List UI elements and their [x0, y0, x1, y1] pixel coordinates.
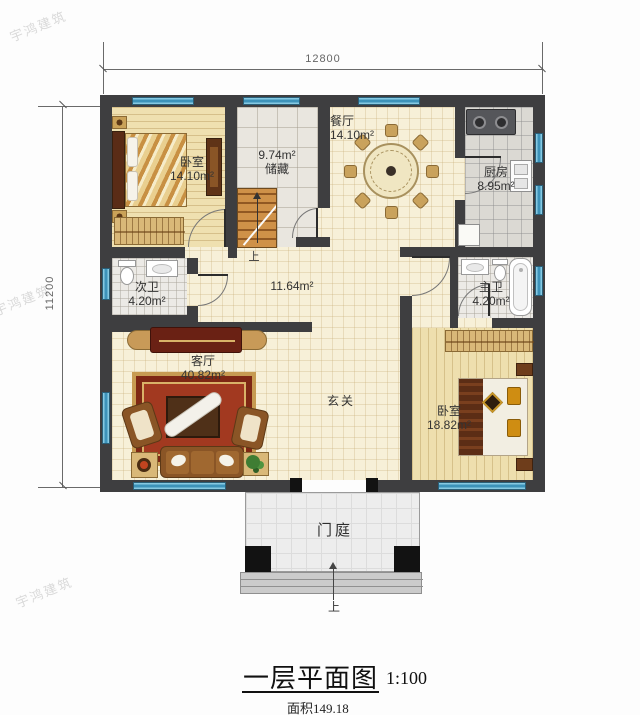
window-bedroom-top-left — [132, 97, 194, 105]
label-foyer: 玄关 — [320, 394, 362, 408]
wall-bedroom-storage — [225, 107, 237, 247]
wardrobe-rail — [446, 341, 534, 343]
entrance-arrow-head — [329, 562, 337, 569]
nightstand-lamp — [112, 116, 127, 129]
step-line — [241, 586, 423, 587]
door-leaf-bedroom-right — [412, 256, 450, 258]
potted-plant — [246, 455, 260, 469]
dining-chair — [385, 206, 398, 219]
wardrobe — [445, 330, 533, 352]
entrance-steps — [240, 572, 422, 594]
wall-kitchen-left-a — [455, 107, 465, 158]
armchair-cushion — [129, 409, 155, 441]
porch-column-left — [245, 546, 271, 572]
wall-bath-second-right-a — [187, 258, 198, 274]
stairs-direction-line — [257, 197, 258, 243]
wall-storage-stub — [296, 237, 330, 247]
pillow — [507, 419, 521, 437]
decor-bowl — [137, 458, 151, 472]
room-name: 卧室 — [162, 155, 222, 169]
entrance-up-label: 上 — [325, 600, 343, 614]
dining-chair — [426, 165, 439, 178]
window-living-bottom — [133, 482, 226, 490]
dimension-extension-line — [38, 106, 102, 107]
stove-burner — [495, 116, 508, 129]
nightstand — [516, 458, 533, 471]
bed-headboard — [112, 131, 125, 209]
room-area: 9.74m² — [248, 148, 306, 162]
dimension-line-left — [62, 106, 63, 488]
toilet-tank — [118, 260, 136, 267]
window-storage — [243, 97, 300, 105]
room-name: 次卫 — [118, 280, 176, 294]
door-leaf-kitchen — [465, 156, 501, 158]
window-kitchen-1 — [535, 133, 543, 163]
room-name: 主卫 — [462, 280, 520, 294]
room-name: 餐厅 — [330, 114, 386, 128]
stove-burner — [473, 116, 486, 129]
room-name: 储藏 — [248, 162, 306, 176]
dimension-label-width: 12800 — [295, 53, 351, 65]
room-name: 厨房 — [466, 165, 526, 179]
dining-chair — [385, 124, 398, 137]
floor-plan-canvas: 宇鸿建筑 宇鸿建筑 宇鸿建筑 12800 11200 — [0, 0, 640, 715]
watermark-bottom-left: 宇鸿建筑 — [13, 571, 76, 611]
bathroom-sink — [461, 259, 489, 275]
side-table-left — [131, 452, 158, 478]
label-bath-second: 次卫 4.20m² — [118, 280, 176, 309]
stove — [466, 109, 516, 135]
dimension-label-height: 11200 — [44, 263, 56, 323]
fridge — [458, 224, 480, 246]
label-bedroom-top-left: 卧室 14.10m² — [162, 155, 222, 184]
dimension-extension-line — [38, 487, 102, 488]
drawing-title: 一层平面图 — [243, 658, 378, 695]
sink-basin — [152, 264, 172, 274]
dimension-line-top — [103, 69, 543, 70]
label-kitchen: 厨房 8.95m² — [466, 165, 526, 194]
wardrobe-rail — [115, 231, 185, 233]
sofa-cushion — [191, 451, 214, 474]
nightstand — [516, 363, 533, 376]
label-porch: 门庭 — [310, 522, 360, 540]
tv-cabinet — [150, 327, 242, 353]
room-name: 客厅 — [172, 354, 234, 368]
label-living: 客厅 40.82m² — [172, 354, 234, 383]
window-bedroom-right-bottom — [438, 482, 526, 490]
door-leaf-bedroom-top-left — [224, 209, 226, 247]
entrance-direction-line — [333, 566, 334, 600]
stairs-up-label: 上 — [246, 251, 262, 264]
room-area: 40.82m² — [172, 368, 234, 382]
room-area: 4.20m² — [462, 294, 520, 308]
room-name: 卧室 — [418, 404, 480, 418]
wall-bath-master-left — [450, 257, 458, 318]
window-bath-master — [535, 266, 543, 296]
stairs-arrow-head — [253, 192, 261, 199]
window-bath-second — [102, 268, 110, 300]
label-dining: 餐厅 14.10m² — [330, 114, 386, 143]
dimension-tick — [59, 101, 67, 109]
side-table-right — [243, 452, 269, 476]
wardrobe — [114, 217, 184, 245]
room-area: 11.64m² — [260, 279, 324, 293]
label-hallway: 11.64m² — [260, 279, 324, 293]
wall-bedroom-bottom-a — [112, 247, 185, 258]
wall-bedroom-bottom-b — [228, 247, 237, 258]
window-dining — [358, 97, 420, 105]
pillow — [127, 171, 138, 201]
armchair-cushion — [239, 414, 261, 443]
staircase — [237, 188, 277, 248]
room-name: 玄关 — [320, 394, 362, 408]
bathroom-sink — [146, 260, 178, 277]
dimension-tick — [59, 482, 67, 490]
title-underline — [242, 691, 379, 693]
dining-table-center — [386, 166, 396, 176]
tv-screen-line — [159, 340, 235, 342]
sink-basin — [466, 263, 484, 272]
window-living-left — [102, 392, 110, 444]
wall-bath-master-bottom-b — [492, 318, 545, 328]
wall-foyer-bedroom — [400, 296, 412, 480]
watermark-top-left: 宇鸿建筑 — [7, 5, 70, 45]
bathtub-drain — [519, 268, 523, 272]
drawing-area-note: 面积149.18 — [287, 698, 349, 715]
drawing-scale: 1:100 — [386, 668, 427, 689]
room-area: 14.10m² — [162, 169, 222, 183]
door-leaf-storage — [316, 208, 318, 238]
label-bedroom-right: 卧室 18.82m² — [418, 404, 480, 433]
wall-bath-master-bottom-a — [450, 318, 458, 328]
room-area: 14.10m² — [330, 128, 386, 142]
decor-pillow — [482, 392, 503, 413]
toilet-bowl — [494, 265, 506, 281]
porch-column-right — [394, 546, 420, 572]
step-line — [241, 579, 423, 580]
room-area: 18.82m² — [418, 418, 480, 432]
room-name: 门庭 — [310, 522, 360, 540]
room-area: 4.20m² — [118, 294, 176, 308]
label-bath-master: 主卫 4.20m² — [462, 280, 520, 309]
sofa — [160, 446, 244, 478]
room-area: 8.95m² — [466, 179, 526, 193]
door-leaf-bath-second — [198, 274, 228, 276]
dining-chair — [344, 165, 357, 178]
label-storage: 9.74m² 储藏 — [248, 148, 306, 177]
wall-storage-dining — [318, 107, 330, 208]
pillow — [507, 387, 521, 405]
pillow — [127, 137, 138, 167]
window-kitchen-2 — [535, 185, 543, 215]
